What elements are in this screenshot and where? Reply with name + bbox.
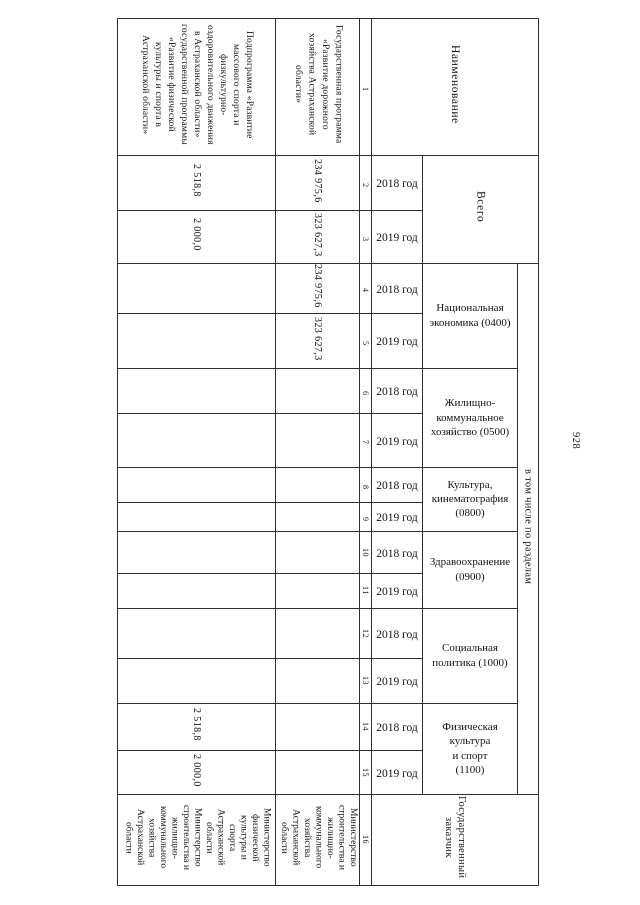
column-number-cell: 1 (360, 19, 372, 156)
section-label-1100: Физическая культура и спорт (1100) (442, 720, 498, 777)
column-header-customer: Государственный заказчик (442, 796, 468, 878)
empty-cell (276, 532, 360, 574)
column-header-total: Всего (475, 191, 487, 222)
column-header-sections-group: в том числе по разделам (523, 469, 534, 584)
empty-cell (118, 369, 276, 414)
program-total-2019-cell: 323 627,3 (276, 211, 360, 264)
year-label: 2019 год (376, 336, 418, 348)
column-number-cell: 8 (360, 468, 372, 503)
year-cell: 2019 год (372, 574, 423, 609)
program-0400-2018: 234 975,6 (312, 264, 323, 308)
ministry-name: Министерство физической культуры и спорт… (202, 805, 271, 870)
section-label-1000: Социальная политика (1000) (432, 641, 507, 670)
section-cell-1000: Социальная политика (1000) (423, 609, 518, 704)
empty-cell (118, 264, 276, 314)
program-name: Государственная программа «Развитие доро… (291, 25, 345, 143)
empty-cell (118, 659, 276, 704)
column-number-cell: 6 (360, 369, 372, 414)
empty-cell (118, 314, 276, 369)
page-number: 928 (570, 432, 581, 449)
program-total-2018-cell: 234 975,6 (276, 156, 360, 211)
column-number-cell: 4 (360, 264, 372, 314)
document-page: Подпрограмма «Развитие массового спорта … (0, 0, 640, 905)
program-name-cell: Государственная программа «Развитие доро… (276, 19, 360, 156)
section-cell-1100: Физическая культура и спорт (1100) (423, 704, 518, 795)
empty-cell (276, 609, 360, 659)
year-cell: 2018 год (372, 156, 423, 211)
year-cell: 2019 год (372, 414, 423, 468)
year-cell: 2018 год (372, 369, 423, 414)
year-label: 2018 год (376, 722, 418, 734)
year-label: 2019 год (376, 512, 418, 524)
year-label: 2019 год (376, 436, 418, 448)
empty-cell (118, 574, 276, 609)
empty-cell (276, 468, 360, 503)
subprogram-total-2018-cell: 2 518,8 (118, 156, 276, 211)
column-number-cell: 2 (360, 156, 372, 211)
column-number: 12 (361, 629, 370, 638)
column-number-cell: 15 (360, 751, 372, 795)
column-number: 4 (361, 288, 370, 293)
year-cell: 2019 год (372, 659, 423, 704)
empty-cell (276, 574, 360, 609)
subprogram-1100-2019: 2 000,0 (191, 754, 202, 787)
program-total-2019: 323 627,3 (312, 213, 323, 257)
empty-cell (276, 659, 360, 704)
section-cell-0500: Жилищно- коммунальное хозяйство (0500) (423, 369, 518, 468)
subprogram-name-cell: Подпрограмма «Развитие массового спорта … (118, 19, 276, 156)
column-number: 15 (361, 768, 370, 777)
program-total-2018: 234 975,6 (312, 159, 323, 203)
ministry-name: Министерство строительства и жилищно- ко… (122, 805, 203, 870)
column-number: 1 (361, 87, 370, 92)
column-number-cell: 9 (360, 503, 372, 532)
year-label: 2018 год (376, 178, 418, 190)
program-ministry-cell: Министерство строительства и жилищно- ко… (276, 795, 360, 886)
column-number-cell: 10 (360, 532, 372, 574)
column-header-name: Наименование (449, 45, 461, 124)
column-number: 11 (361, 586, 370, 595)
year-label: 2018 год (376, 386, 418, 398)
empty-cell (276, 369, 360, 414)
subprogram-total-2019-cell: 2 000,0 (118, 211, 276, 264)
section-cell-0900: Здравоохранение (0900) (423, 532, 518, 609)
header-total-cell: Всего (423, 156, 539, 264)
program-0400-2018-cell: 234 975,6 (276, 264, 360, 314)
year-cell: 2018 год (372, 704, 423, 751)
column-number: 2 (361, 183, 370, 188)
subprogram-total-2018: 2 518,8 (191, 164, 202, 197)
empty-cell (118, 503, 276, 532)
budget-table: Подпрограмма «Развитие массового спорта … (117, 18, 539, 886)
year-cell: 2018 год (372, 468, 423, 503)
subprogram-1100-2018: 2 518,8 (191, 708, 202, 741)
year-label: 2019 год (376, 676, 418, 688)
empty-cell (276, 704, 360, 751)
empty-cell (276, 503, 360, 532)
year-cell: 2019 год (372, 211, 423, 264)
column-number: 7 (361, 440, 370, 445)
empty-cell (118, 414, 276, 468)
year-label: 2018 год (376, 284, 418, 296)
year-cell: 2018 год (372, 264, 423, 314)
header-name-cell: Наименование (372, 19, 539, 156)
year-label: 2018 год (376, 548, 418, 560)
program-ministry: Министерство строительства и жилищно- ко… (277, 805, 358, 870)
subprogram-1100-2018-cell: 2 518,8 (118, 704, 276, 751)
section-label-0400: Национальная экономика (0400) (429, 301, 510, 330)
column-number: 14 (361, 722, 370, 731)
subprogram-ministries: Министерство физической культуры и спорт… (122, 805, 272, 870)
section-label-0500: Жилищно- коммунальное хозяйство (0500) (431, 396, 509, 439)
column-number: 5 (361, 341, 370, 346)
column-number-cell: 5 (360, 314, 372, 369)
program-0400-2019-cell: 323 627,3 (276, 314, 360, 369)
column-number-cell: 16 (360, 795, 372, 886)
section-cell-0400: Национальная экономика (0400) (423, 264, 518, 369)
column-number-cell: 14 (360, 704, 372, 751)
header-customer-cell: Государственный заказчик (372, 795, 539, 886)
section-label-0900: Здравоохранение (0900) (430, 555, 510, 584)
column-number-cell: 11 (360, 574, 372, 609)
year-cell: 2019 год (372, 314, 423, 369)
column-number-cell: 7 (360, 414, 372, 468)
year-label: 2018 год (376, 629, 418, 641)
column-number: 13 (361, 676, 370, 685)
column-number: 3 (361, 237, 370, 242)
column-number: 8 (361, 485, 370, 490)
year-label: 2019 год (376, 768, 418, 780)
column-number: 10 (361, 548, 370, 557)
year-cell: 2019 год (372, 503, 423, 532)
subprogram-1100-2019-cell: 2 000,0 (118, 751, 276, 795)
program-0400-2019: 323 627,3 (312, 317, 323, 361)
subprogram-name: Подпрограмма «Развитие массового спорта … (138, 24, 255, 145)
year-label: 2018 год (376, 480, 418, 492)
column-number: 6 (361, 391, 370, 396)
year-cell: 2018 год (372, 532, 423, 574)
section-label-0800: Культура, кинематография (0800) (432, 478, 509, 521)
empty-cell (118, 609, 276, 659)
empty-cell (118, 532, 276, 574)
year-label: 2019 год (376, 586, 418, 598)
column-number: 16 (361, 835, 370, 844)
column-number-cell: 13 (360, 659, 372, 704)
year-cell: 2018 год (372, 609, 423, 659)
empty-cell (276, 751, 360, 795)
header-sections-group-cell: в том числе по разделам (518, 264, 539, 795)
empty-cell (276, 414, 360, 468)
column-number-cell: 12 (360, 609, 372, 659)
year-cell: 2019 год (372, 751, 423, 795)
column-number-cell: 3 (360, 211, 372, 264)
year-label: 2019 год (376, 232, 418, 244)
section-cell-0800: Культура, кинематография (0800) (423, 468, 518, 532)
column-number: 9 (361, 517, 370, 522)
subprogram-total-2019: 2 000,0 (191, 218, 202, 251)
empty-cell (118, 468, 276, 503)
subprogram-ministries-cell: Министерство физической культуры и спорт… (118, 795, 276, 886)
